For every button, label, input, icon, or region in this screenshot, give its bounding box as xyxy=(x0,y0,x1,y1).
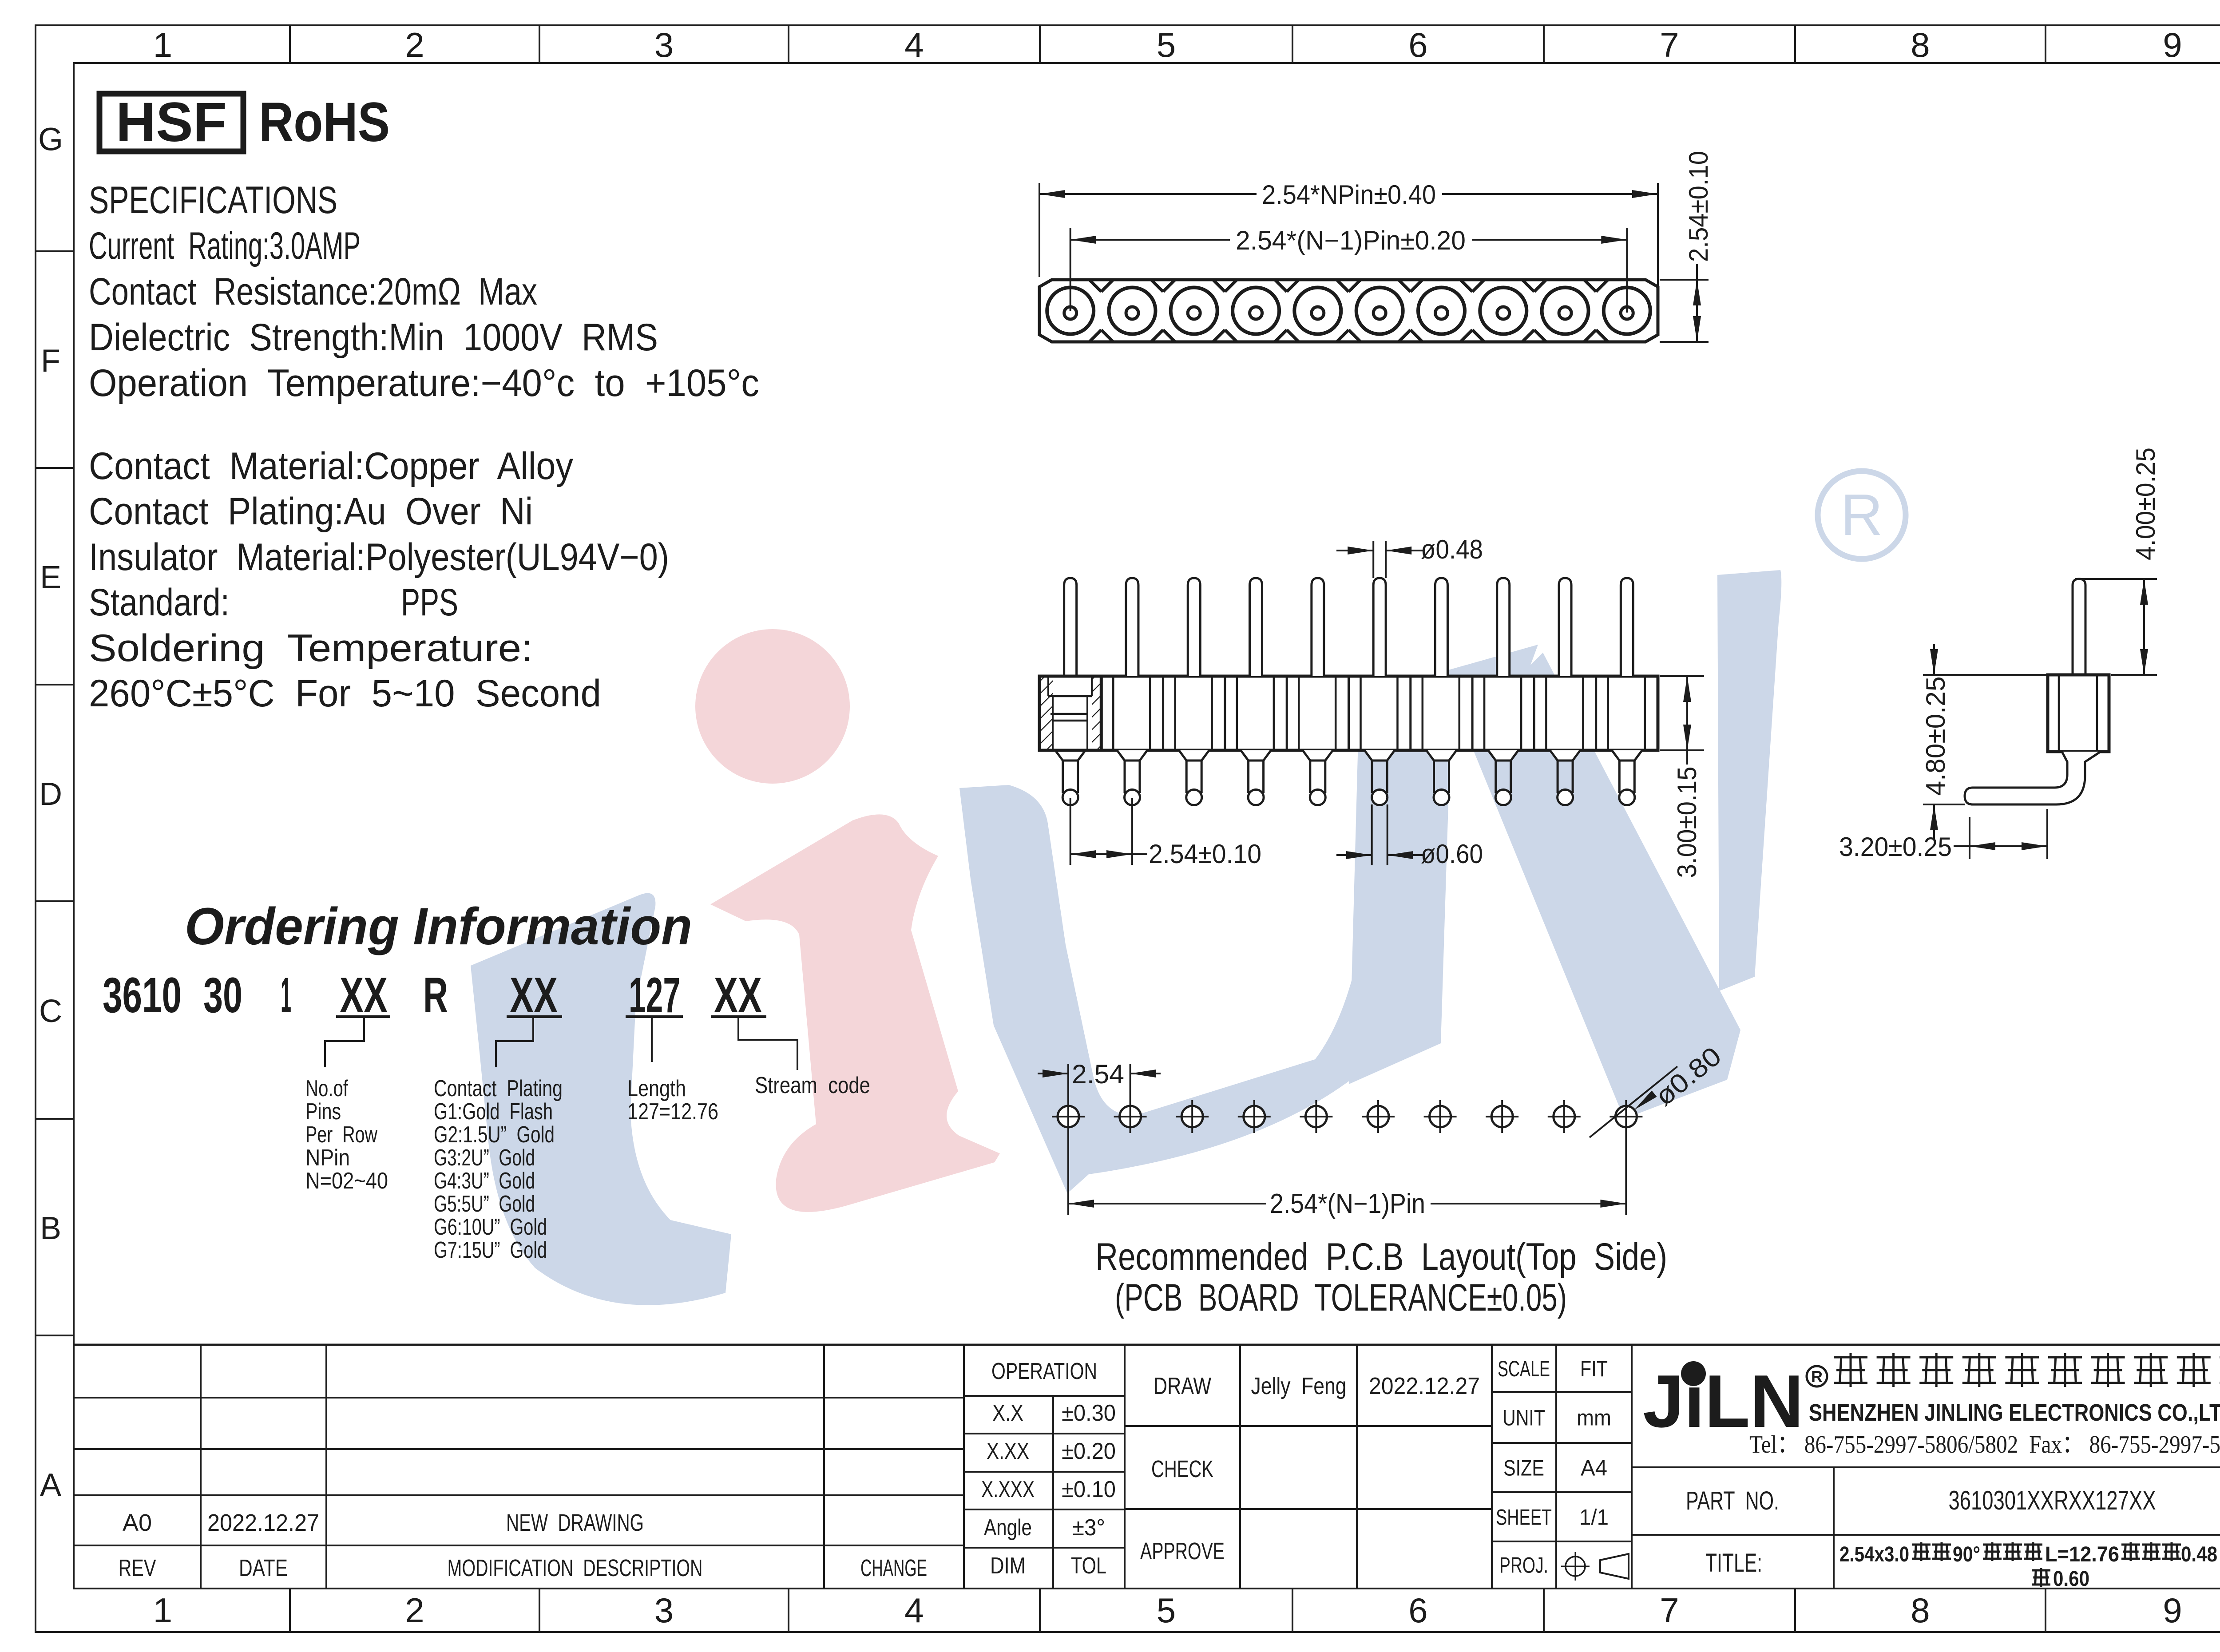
svg-text:RoHS: RoHS xyxy=(259,91,390,153)
svg-text:REV: REV xyxy=(119,1555,156,1581)
svg-text:5: 5 xyxy=(1157,1591,1176,1630)
svg-text:G: G xyxy=(38,122,63,158)
svg-text:Contact Plating: Contact Plating xyxy=(434,1076,563,1101)
svg-text:127=12.76: 127=12.76 xyxy=(627,1099,718,1125)
svg-text:DRAW: DRAW xyxy=(1154,1373,1211,1399)
svg-text:APPROVE: APPROVE xyxy=(1140,1538,1225,1565)
svg-text:R: R xyxy=(1840,482,1883,547)
svg-text:3.20±0.25: 3.20±0.25 xyxy=(1839,832,1952,862)
svg-text:Pins: Pins xyxy=(305,1099,341,1125)
svg-text:SIZE: SIZE xyxy=(1503,1456,1544,1481)
svg-text:XX: XX xyxy=(510,967,558,1023)
svg-text:1: 1 xyxy=(281,967,291,1023)
svg-text:ø0.48: ø0.48 xyxy=(1421,535,1483,564)
svg-text:G3:2U” Gold: G3:2U” Gold xyxy=(434,1145,535,1171)
svg-text:2: 2 xyxy=(405,1591,424,1630)
svg-text:3: 3 xyxy=(654,1591,674,1630)
svg-text:Jelly Feng: Jelly Feng xyxy=(1251,1373,1347,1399)
svg-text:260°C±5°C For 5~10 Second: 260°C±5°C For 5~10 Second xyxy=(89,672,601,715)
svg-text:6: 6 xyxy=(1408,1591,1427,1630)
svg-text:CHECK: CHECK xyxy=(1151,1456,1213,1482)
svg-text:E: E xyxy=(40,560,61,595)
svg-text:PPS: PPS xyxy=(401,581,458,624)
svg-text:(PCB BOARD TOLERANCE±0.05): (PCB BOARD TOLERANCE±0.05) xyxy=(1115,1276,1567,1319)
svg-text:R: R xyxy=(423,967,448,1023)
svg-text:1: 1 xyxy=(153,25,172,64)
svg-text:FIT: FIT xyxy=(1580,1356,1608,1381)
svg-text:ø0.60: ø0.60 xyxy=(1421,839,1483,869)
svg-text:PROJ.: PROJ. xyxy=(1499,1553,1548,1578)
svg-text:X.XX: X.XX xyxy=(987,1438,1029,1464)
svg-text:3: 3 xyxy=(654,25,674,64)
svg-text:2.54x3.0: 2.54x3.0 xyxy=(1839,1543,1909,1566)
svg-text:8: 8 xyxy=(1911,1591,1930,1630)
svg-text:Recommended P.C.B Layout(Top: Recommended P.C.B Layout(Top Side) xyxy=(1095,1236,1667,1278)
svg-text:G4:3U” Gold: G4:3U” Gold xyxy=(434,1168,535,1194)
svg-text:Contact Plating:Au Over Ni: Contact Plating:Au Over Ni xyxy=(89,490,533,533)
svg-text:Current Rating:3.0AMP: Current Rating:3.0AMP xyxy=(89,225,361,267)
svg-text:±3°: ±3° xyxy=(1072,1515,1105,1541)
svg-text:F: F xyxy=(41,343,60,379)
svg-text:2.54*NPin±0.40: 2.54*NPin±0.40 xyxy=(1262,180,1436,210)
svg-text:Soldering Temperature:: Soldering Temperature: xyxy=(89,627,533,670)
svg-text:G2:1.5U” Gold: G2:1.5U” Gold xyxy=(434,1122,555,1148)
svg-text:X.XXX: X.XXX xyxy=(981,1477,1035,1502)
svg-text:7: 7 xyxy=(1660,1591,1679,1630)
svg-text:5: 5 xyxy=(1157,25,1176,64)
svg-text:Insulator Material:Polyester(: Insulator Material:Polyester(UL94V−0) xyxy=(89,536,669,578)
svg-text:R: R xyxy=(1811,1367,1823,1386)
svg-text:4.00±0.25: 4.00±0.25 xyxy=(2131,448,2161,560)
svg-text:8: 8 xyxy=(1911,25,1930,64)
svg-text:Ordering Information: Ordering Information xyxy=(185,897,692,956)
svg-text:PART NO.: PART NO. xyxy=(1686,1486,1779,1515)
svg-text:Operation Temperature:−40°c: Operation Temperature:−40°c to +105°c xyxy=(89,362,759,404)
svg-text:X.X: X.X xyxy=(992,1400,1023,1426)
svg-text:1: 1 xyxy=(153,1591,172,1630)
svg-text:TOL: TOL xyxy=(1071,1553,1106,1579)
svg-text:4: 4 xyxy=(904,25,924,64)
svg-text:Contact Resistance:20mΩ Max: Contact Resistance:20mΩ Max xyxy=(89,270,537,313)
svg-text:2.54: 2.54 xyxy=(1072,1059,1124,1089)
svg-text:G7:15U” Gold: G7:15U” Gold xyxy=(434,1237,547,1263)
svg-text:MODIFICATION DESCRIPTION: MODIFICATION DESCRIPTION xyxy=(448,1555,703,1581)
svg-text:2022.12.27: 2022.12.27 xyxy=(207,1509,319,1536)
svg-text:0.60: 0.60 xyxy=(2053,1567,2089,1591)
svg-text:4.80±0.25: 4.80±0.25 xyxy=(1921,677,1950,796)
svg-text:SHEET: SHEET xyxy=(1496,1505,1552,1530)
svg-text:3.00±0.15: 3.00±0.15 xyxy=(1672,767,1702,878)
svg-text:A4: A4 xyxy=(1581,1456,1607,1481)
svg-text:3610: 3610 xyxy=(103,967,182,1023)
svg-text:±0.30: ±0.30 xyxy=(1062,1400,1116,1426)
svg-text:SCALE: SCALE xyxy=(1498,1356,1550,1381)
svg-text:Stream code: Stream code xyxy=(755,1073,870,1098)
svg-text:JiLN: JiLN xyxy=(1643,1359,1804,1443)
svg-text:90°: 90° xyxy=(1953,1543,1980,1566)
svg-text:6: 6 xyxy=(1408,25,1427,64)
svg-text:B: B xyxy=(40,1211,61,1246)
svg-text:G1:Gold Flash: G1:Gold Flash xyxy=(434,1099,553,1125)
svg-text:D: D xyxy=(39,776,62,812)
svg-text:TITLE:: TITLE: xyxy=(1705,1549,1762,1577)
svg-text:2022.12.27: 2022.12.27 xyxy=(1369,1373,1480,1399)
svg-text:±0.20: ±0.20 xyxy=(1062,1438,1116,1464)
svg-text:2.54±0.10: 2.54±0.10 xyxy=(1149,839,1261,869)
svg-text:NEW DRAWING: NEW DRAWING xyxy=(506,1509,644,1536)
svg-text:XX: XX xyxy=(714,967,762,1023)
svg-text:A0: A0 xyxy=(123,1509,152,1536)
svg-text:No.of: No.of xyxy=(305,1076,348,1101)
svg-text:0.48: 0.48 xyxy=(2181,1543,2217,1566)
svg-text:30: 30 xyxy=(203,967,242,1023)
svg-text:G6:10U” Gold: G6:10U” Gold xyxy=(434,1214,547,1240)
svg-text:mm: mm xyxy=(1577,1406,1611,1430)
svg-text:2: 2 xyxy=(405,25,424,64)
svg-text:XX: XX xyxy=(340,967,388,1023)
svg-text:2.54*(N−1)Pin: 2.54*(N−1)Pin xyxy=(1270,1188,1425,1219)
svg-text:DIM: DIM xyxy=(990,1553,1026,1579)
svg-text:Dielectric Strength:Min 1000: Dielectric Strength:Min 1000V RMS xyxy=(89,316,658,359)
svg-text:SHENZHEN JINLING ELECTRONICS C: SHENZHEN JINLING ELECTRONICS CO.,LTD xyxy=(1809,1399,2220,1426)
svg-text:9: 9 xyxy=(2163,25,2182,64)
svg-text:127: 127 xyxy=(629,967,680,1023)
svg-text:NPin: NPin xyxy=(305,1145,350,1171)
svg-text:1/1: 1/1 xyxy=(1579,1505,1609,1530)
svg-text:SPECIFICATIONS: SPECIFICATIONS xyxy=(89,179,337,222)
svg-text:CHANGE: CHANGE xyxy=(860,1555,927,1581)
svg-text:DATE: DATE xyxy=(239,1555,288,1581)
svg-text:Standard:: Standard: xyxy=(89,581,230,624)
svg-text:C: C xyxy=(39,994,62,1029)
svg-text:7: 7 xyxy=(1660,25,1679,64)
svg-text:Length: Length xyxy=(627,1076,686,1101)
svg-text:±0.10: ±0.10 xyxy=(1062,1477,1116,1502)
svg-text:HSF: HSF xyxy=(116,91,227,153)
svg-text:4: 4 xyxy=(904,1591,924,1630)
svg-text:9: 9 xyxy=(2163,1591,2182,1630)
svg-text:Per Row: Per Row xyxy=(305,1122,377,1148)
svg-text:G5:5U” Gold: G5:5U” Gold xyxy=(434,1191,535,1217)
svg-text:2.54*(N−1)Pin±0.20: 2.54*(N−1)Pin±0.20 xyxy=(1236,226,1466,255)
svg-text:Tel： 86-755-2997-5806/5802 Fa: Tel： 86-755-2997-5806/5802 Fax： 86-755-2… xyxy=(1749,1431,2220,1458)
svg-text:OPERATION: OPERATION xyxy=(991,1359,1097,1384)
svg-text:2.54±0.10: 2.54±0.10 xyxy=(1684,151,1713,262)
svg-text:Angle: Angle xyxy=(984,1515,1032,1541)
svg-text:3610301XXRXX127XX: 3610301XXRXX127XX xyxy=(1949,1486,2156,1515)
svg-text:UNIT: UNIT xyxy=(1502,1406,1545,1430)
svg-text:N=02~40: N=02~40 xyxy=(305,1168,388,1194)
svg-text:L=12.76: L=12.76 xyxy=(2045,1543,2119,1566)
svg-text:A: A xyxy=(40,1467,61,1503)
svg-text:Contact Material:Copper Allo: Contact Material:Copper Alloy xyxy=(89,445,573,487)
